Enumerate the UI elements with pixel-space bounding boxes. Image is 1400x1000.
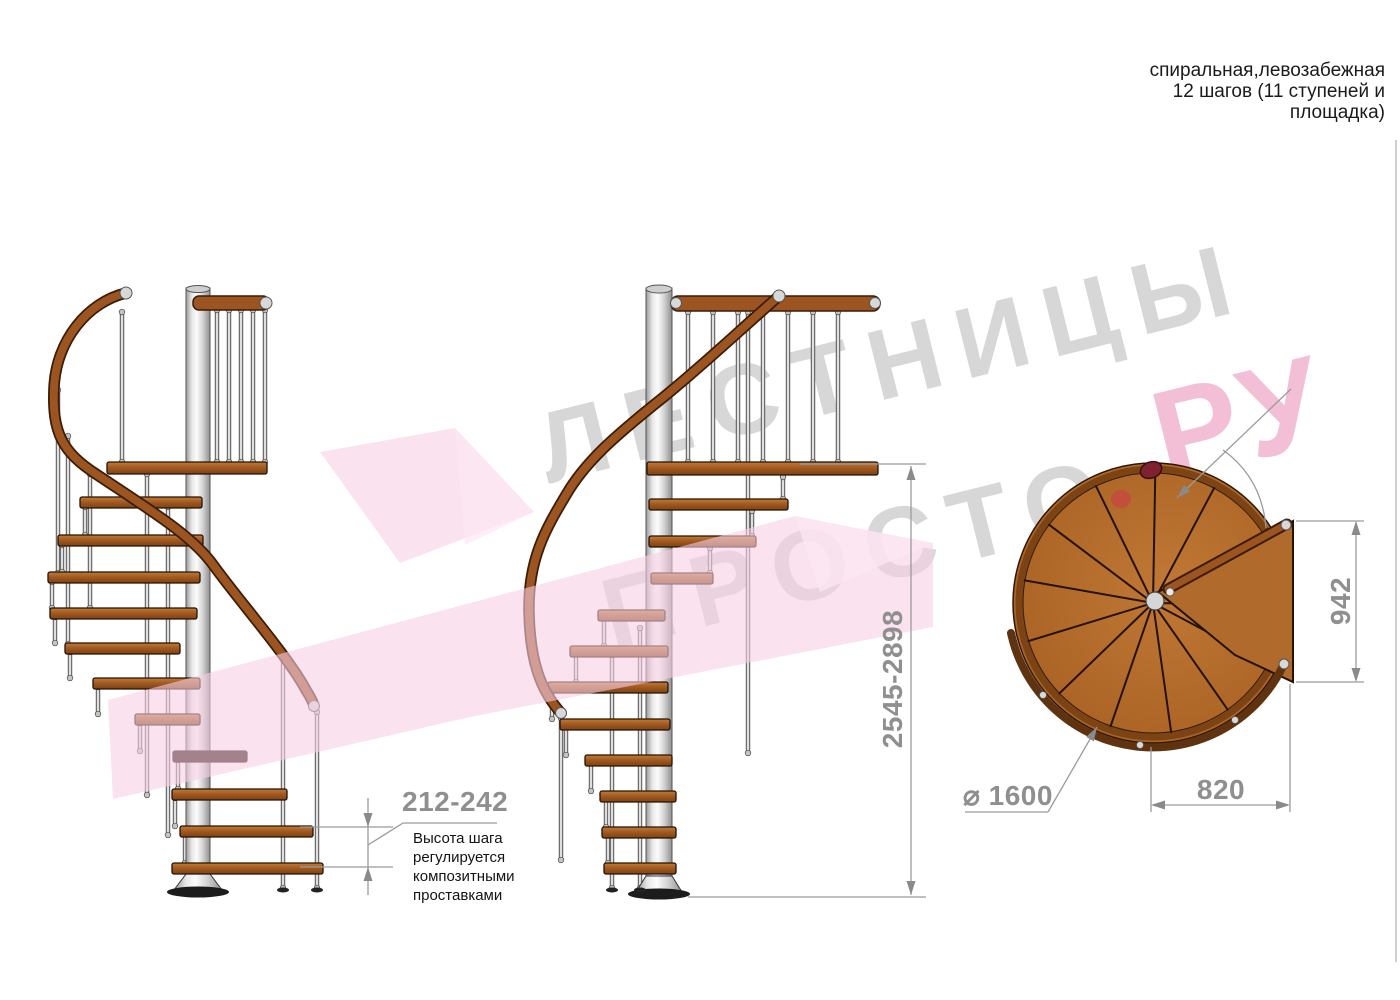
- baluster-joint: [172, 823, 178, 829]
- step-board: [172, 863, 323, 874]
- handrail-end-cap: [671, 298, 682, 309]
- baluster-joint: [52, 640, 58, 646]
- step-board: [48, 572, 200, 583]
- plan-baluster-dot: [1040, 692, 1047, 699]
- plan-rail-cap: [1279, 659, 1289, 669]
- step-board: [180, 826, 313, 837]
- dimension-arrowhead: [907, 881, 916, 895]
- handrail-end-cap: [260, 297, 272, 309]
- leader-line: [368, 823, 403, 845]
- plan-baluster-dot: [1232, 717, 1239, 724]
- baluster-joint: [588, 788, 594, 794]
- step-board: [172, 789, 287, 800]
- logo-block-facet: [455, 428, 534, 545]
- dimension-arrowhead: [1352, 521, 1361, 535]
- step-board: [560, 719, 670, 730]
- technical-drawing-page: ЛЕСТНИЦЫ ПРОСТО .РУ: [0, 0, 1400, 1000]
- rod-foot: [634, 888, 646, 893]
- side-view-staircase-left: [48, 286, 323, 898]
- baluster-joint: [95, 711, 101, 717]
- dimension-arrowhead: [907, 466, 916, 480]
- baluster-joint: [144, 792, 150, 798]
- baluster-joint: [549, 716, 555, 722]
- handrail-top-cap: [773, 290, 785, 302]
- step-board: [50, 608, 197, 619]
- platform-depth-dim-label: 942: [1325, 577, 1357, 625]
- baluster-joint: [745, 750, 751, 756]
- leader-line-diameter: [1048, 727, 1097, 812]
- diameter-dim-label: ⌀ 1600: [963, 779, 1053, 812]
- plan-view: [1011, 459, 1293, 749]
- step-board: [600, 791, 676, 802]
- platform-length-dim-label: 820: [1197, 774, 1245, 806]
- rod-foot: [311, 888, 323, 893]
- plan-center-hub: [1146, 592, 1164, 610]
- step-board: [604, 863, 676, 874]
- handrail-bottom-cap: [556, 708, 567, 719]
- baluster-joint: [67, 675, 73, 681]
- step-height-dim-label: 212-242: [402, 786, 508, 818]
- dimension-arrowhead: [1276, 801, 1290, 810]
- step-board: [585, 755, 672, 766]
- step-board: [65, 643, 180, 654]
- plan-baluster-dot: [1137, 742, 1144, 749]
- top-railing-handrail: [193, 296, 269, 310]
- dimension-arrowhead: [364, 813, 373, 827]
- step-board: [649, 499, 788, 510]
- plan-rail-cap: [1281, 520, 1291, 530]
- step-board: [107, 462, 267, 474]
- pole-cap: [646, 285, 672, 293]
- drawing-title-note: спиральная,левозабежная 12 шагов (11 сту…: [1150, 60, 1385, 123]
- baluster-joint: [563, 752, 569, 758]
- rod-foot: [606, 888, 618, 893]
- baluster-joint: [165, 832, 171, 838]
- baluster-joint: [558, 857, 564, 863]
- step-board: [602, 827, 676, 838]
- balusters-left: [49, 307, 320, 891]
- dimension-arrowhead: [1151, 801, 1165, 810]
- handrail-end-cap: [870, 298, 881, 309]
- handrail-top-cap: [120, 287, 132, 299]
- watermark-dot-overlay: [1111, 490, 1131, 508]
- step-height-note: Высота шага регулируется композитными пр…: [413, 829, 515, 905]
- plan-rail-mount: [1166, 588, 1174, 596]
- staircase-drawing: [0, 0, 1400, 1000]
- base-flange: [167, 887, 229, 898]
- watermark-pink-arrow-logo: [108, 428, 933, 799]
- dimension-arrowhead: [1352, 668, 1361, 682]
- rod-foot: [277, 888, 289, 893]
- dimension-arrowhead: [364, 867, 373, 881]
- total-height-dim-label: 2545-2898: [877, 610, 909, 748]
- pole-cap: [186, 286, 210, 293]
- baluster-joint: [119, 309, 125, 315]
- angle-leader-line: [1177, 389, 1291, 498]
